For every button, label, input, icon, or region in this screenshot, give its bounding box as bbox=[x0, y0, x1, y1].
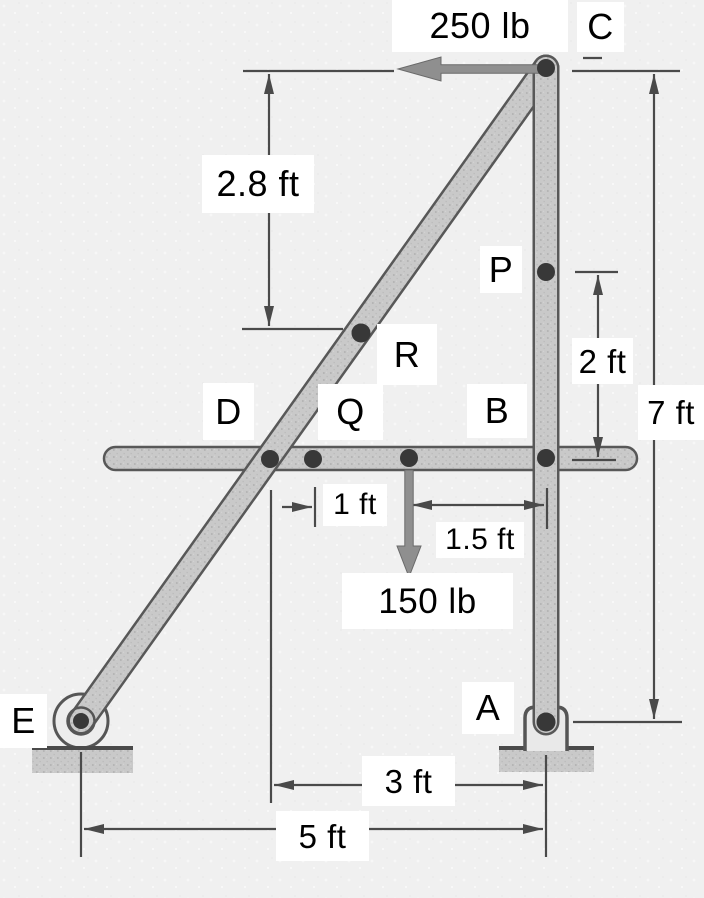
frame-statics-diagram: 250 lb C 2.8 ft P 2 ft 7 ft R D Q B 1 ft… bbox=[0, 0, 704, 898]
force-250-label: 250 lb bbox=[392, 0, 568, 52]
joint-load-point bbox=[400, 449, 418, 467]
ground-hatch-e bbox=[32, 750, 133, 773]
joint-r bbox=[352, 324, 371, 343]
diagram-svg bbox=[0, 0, 704, 898]
dim-1ft-label: 1 ft bbox=[323, 484, 387, 526]
joint-c bbox=[537, 59, 555, 77]
dim-7ft-label: 7 ft bbox=[638, 385, 704, 440]
point-b-label: B bbox=[467, 384, 527, 438]
dim-5ft-label: 5 ft bbox=[276, 811, 369, 861]
joint-p bbox=[537, 263, 555, 281]
point-e-label: E bbox=[0, 694, 47, 748]
point-c-label: C bbox=[577, 2, 624, 52]
joint-a-pin bbox=[537, 713, 556, 732]
joint-q bbox=[304, 450, 322, 468]
point-a-label: A bbox=[462, 682, 514, 734]
dim-2ft-label: 2 ft bbox=[572, 338, 633, 384]
force-150-label: 150 lb bbox=[342, 573, 513, 629]
point-r-label: R bbox=[377, 324, 437, 385]
joint-e-pin bbox=[73, 713, 89, 729]
point-q-label: Q bbox=[318, 384, 383, 440]
point-d-label: D bbox=[203, 383, 254, 440]
dim-1-5ft-label: 1.5 ft bbox=[436, 522, 524, 558]
dim-2-8ft-label: 2.8 ft bbox=[202, 155, 314, 213]
point-p-label: P bbox=[480, 246, 522, 293]
joint-d bbox=[261, 450, 279, 468]
joint-b bbox=[537, 449, 555, 467]
dim-3ft-label: 3 ft bbox=[362, 756, 455, 806]
